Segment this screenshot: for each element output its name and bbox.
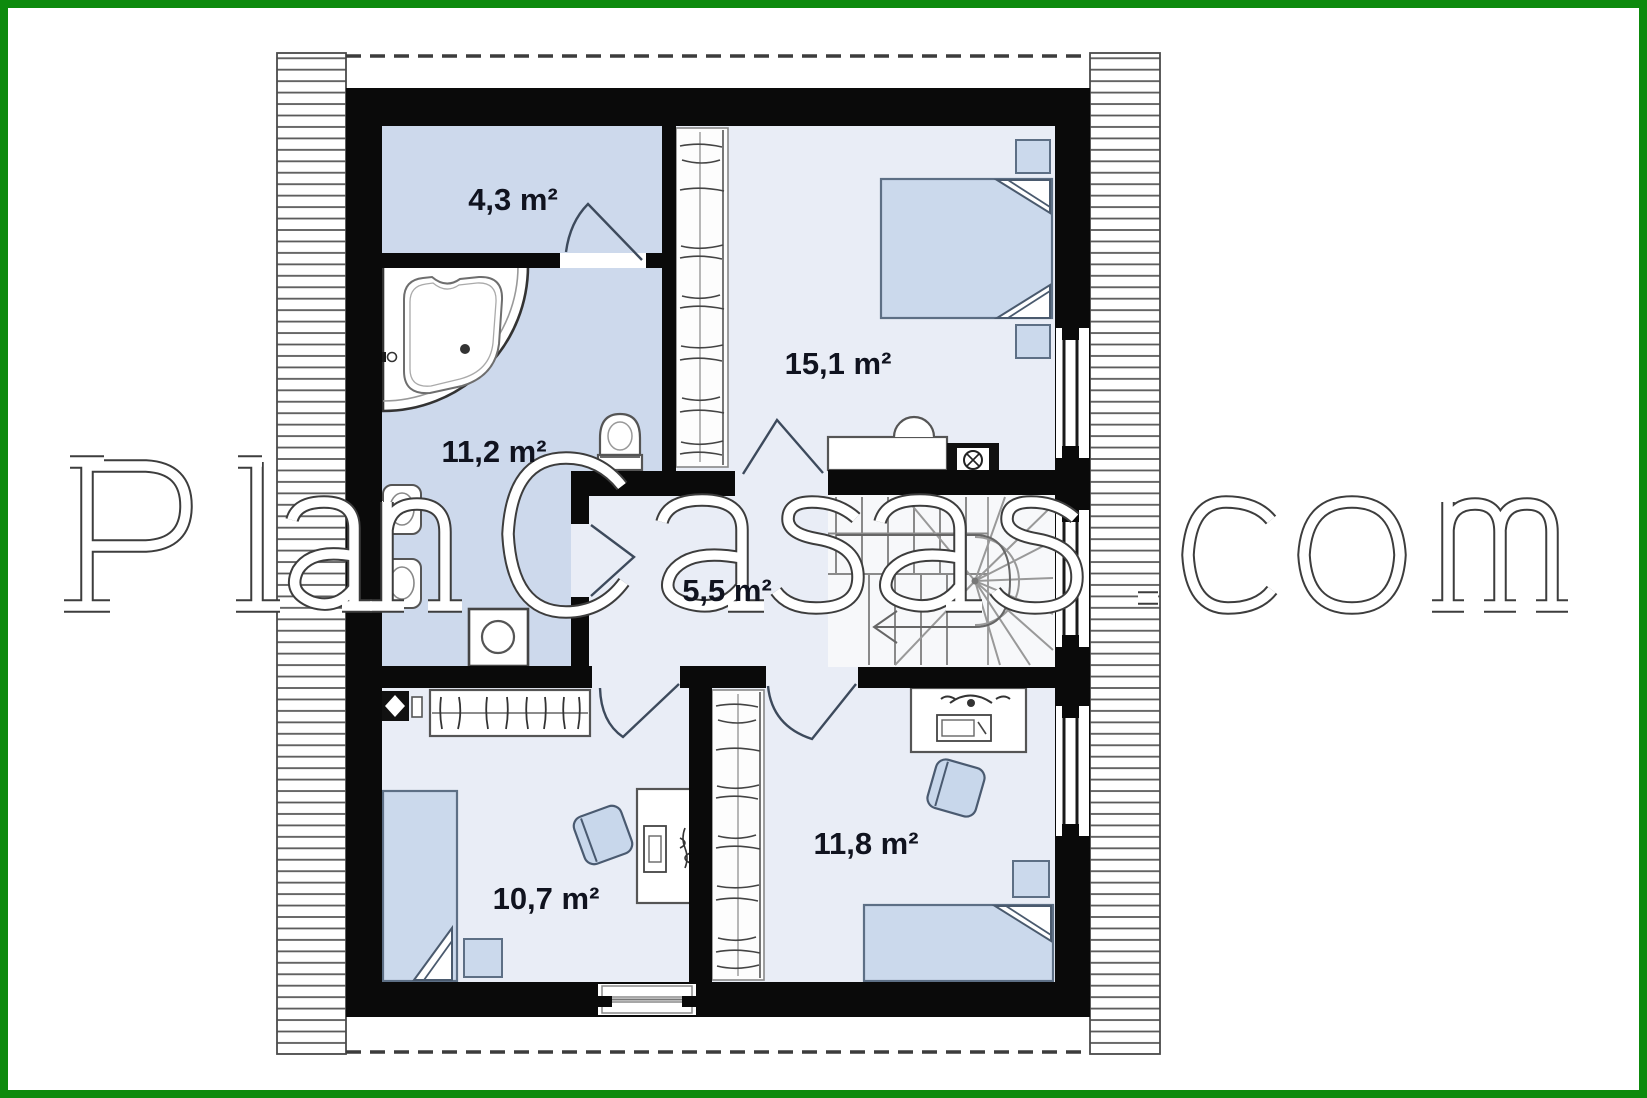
svg-text:10,7 m²: 10,7 m² <box>493 881 600 916</box>
svg-text:11,8 m²: 11,8 m² <box>813 826 918 861</box>
svg-text:11,2 m²: 11,2 m² <box>441 434 546 469</box>
svg-text:15,1 m²: 15,1 m² <box>785 346 892 381</box>
svg-text:5,5 m²: 5,5 m² <box>682 573 772 608</box>
svg-text:4,3 m²: 4,3 m² <box>468 182 558 217</box>
